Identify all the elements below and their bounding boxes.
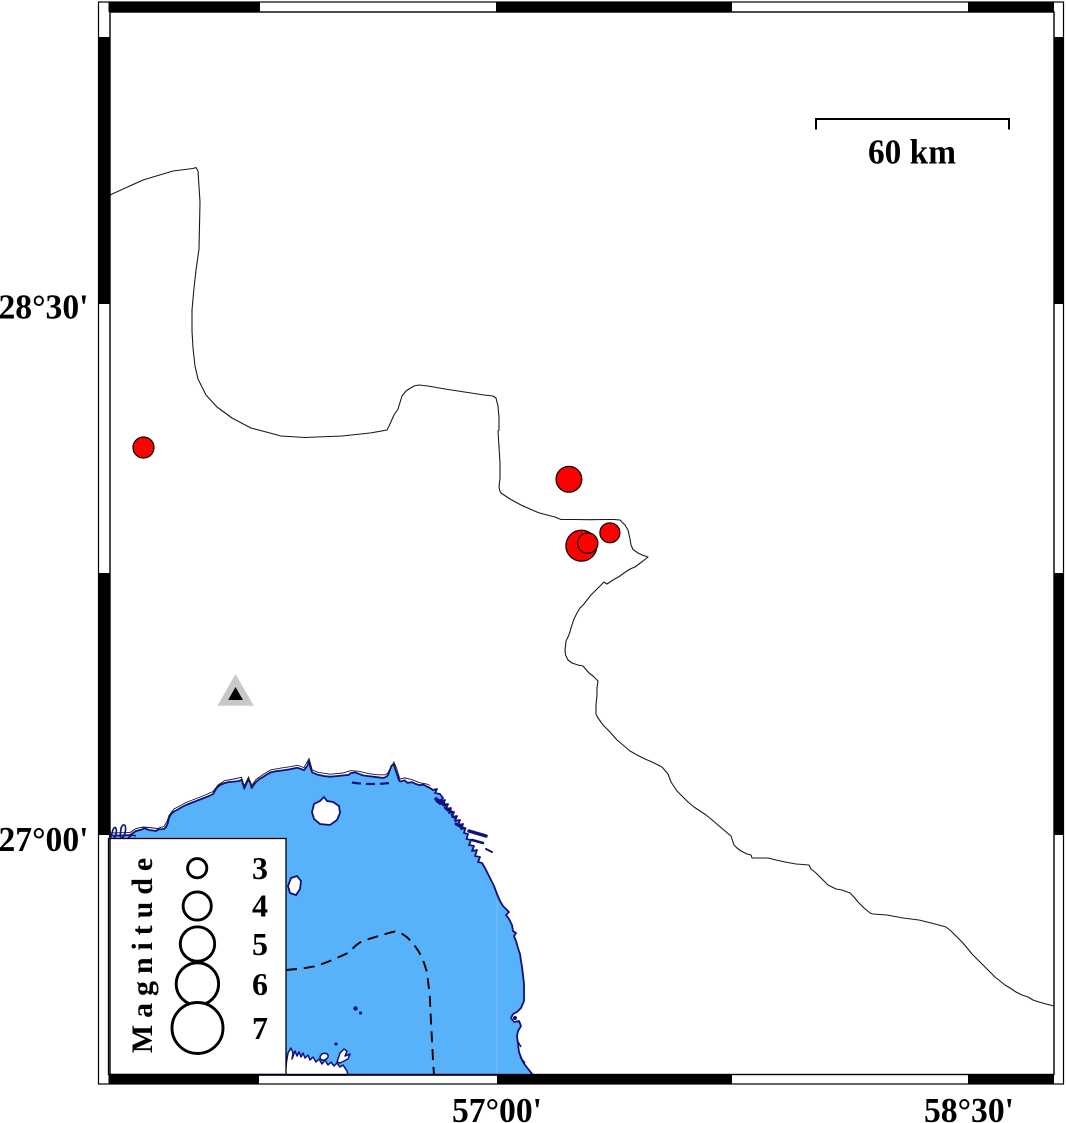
- svg-text:57°00': 57°00': [452, 1091, 542, 1123]
- svg-text:3: 3: [252, 850, 268, 886]
- svg-text:Magnitude: Magnitude: [126, 851, 159, 1053]
- svg-text:28°30': 28°30': [0, 288, 89, 327]
- svg-text:60 km: 60 km: [868, 133, 956, 172]
- svg-text:5: 5: [252, 926, 268, 962]
- svg-text:58°30': 58°30': [924, 1091, 1014, 1123]
- svg-text:27°00': 27°00': [0, 820, 89, 859]
- svg-text:4: 4: [252, 888, 268, 924]
- svg-text:7: 7: [252, 1010, 268, 1046]
- svg-text:6: 6: [252, 966, 268, 1002]
